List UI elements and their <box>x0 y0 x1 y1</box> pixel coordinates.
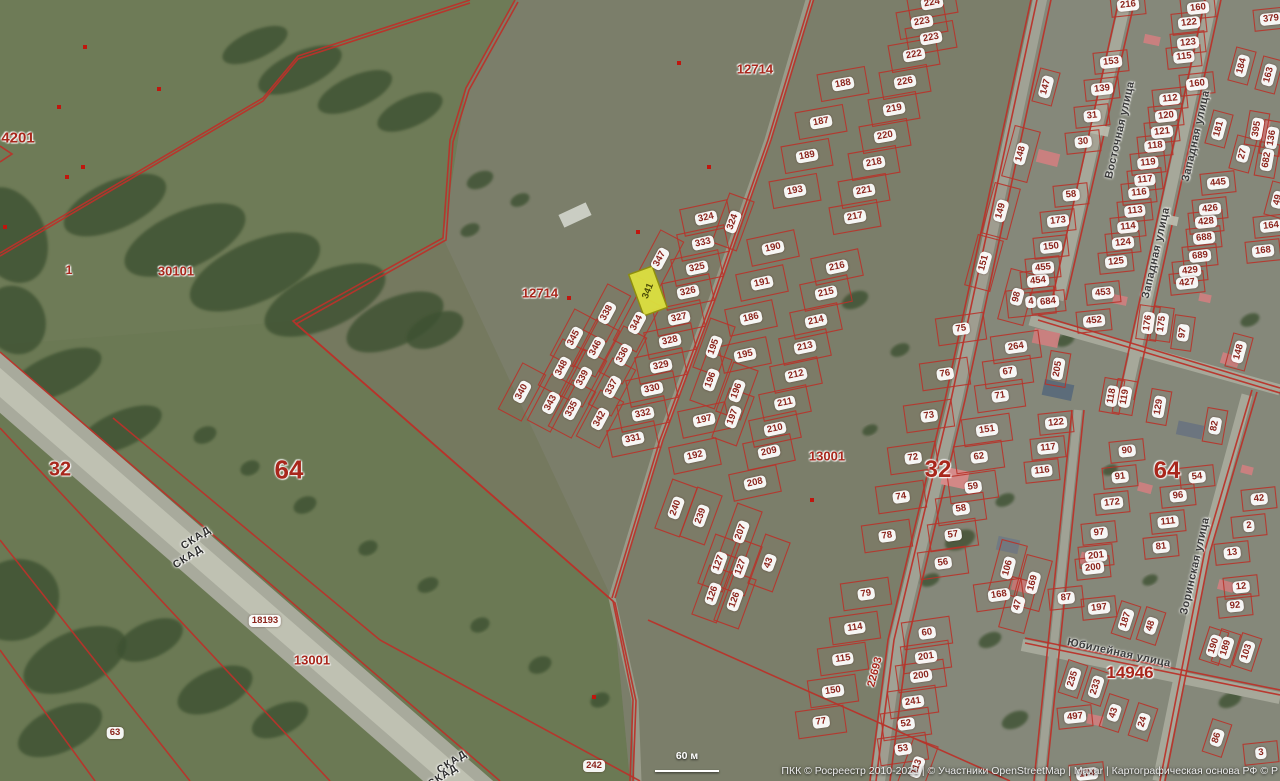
parcel-label[interactable]: 122 <box>1178 16 1201 30</box>
parcel-label[interactable]: 76 <box>936 367 954 381</box>
parcel-label[interactable]: 52 <box>897 717 915 731</box>
parcel-label[interactable]: 78 <box>878 529 896 543</box>
parcel-label[interactable]: 54 <box>1188 470 1206 484</box>
survey-point <box>3 225 7 229</box>
survey-point <box>57 105 61 109</box>
quarter-label[interactable]: 64 <box>1154 457 1181 485</box>
map-canvas[interactable]: 2242232232222262192202182212171881871891… <box>0 0 1280 781</box>
parcel-label[interactable]: 77 <box>812 715 830 729</box>
parcel-label[interactable]: 58 <box>952 502 970 516</box>
parcel-label[interactable]: 112 <box>1159 92 1181 106</box>
parcel-label[interactable]: 454 <box>1027 274 1050 288</box>
parcel-label[interactable]: 445 <box>1207 176 1230 190</box>
survey-point <box>65 175 69 179</box>
quarter-label[interactable]: 64 <box>275 455 304 486</box>
parcel-label[interactable]: 379 <box>1260 12 1280 26</box>
parcel-label[interactable]: 53 <box>894 742 912 756</box>
parcel-label[interactable]: 117 <box>1037 441 1059 455</box>
parcel-label[interactable]: 497 <box>1064 710 1087 724</box>
parcel-label[interactable]: 4 <box>1025 295 1037 308</box>
parcel-label[interactable]: 684 <box>1037 295 1060 309</box>
parcel-label[interactable]: 59 <box>964 480 982 494</box>
parcel-label[interactable]: 62 <box>970 450 988 464</box>
parcel-label[interactable]: 56 <box>934 556 952 570</box>
parcel-label[interactable]: 58 <box>1062 188 1080 202</box>
parcel-label[interactable]: 73 <box>920 409 938 423</box>
parcel-label[interactable]: 75 <box>952 322 970 336</box>
quarter-label[interactable]: 30101 <box>158 264 194 279</box>
parcel-label[interactable]: 426 <box>1199 202 1222 216</box>
parcel-label[interactable]: 57 <box>944 528 962 542</box>
parcel-label[interactable]: 172 <box>1101 496 1124 510</box>
parcel-label[interactable]: 168 <box>1252 244 1275 258</box>
parcel-label[interactable]: 200 <box>1082 561 1105 575</box>
survey-point <box>810 498 814 502</box>
survey-point <box>81 165 85 169</box>
parcel-label[interactable]: 111 <box>1157 515 1179 529</box>
quarter-label[interactable]: 13001 <box>294 653 330 668</box>
quarter-label[interactable]: 1 <box>66 263 73 277</box>
parcel-label[interactable]: 87 <box>1057 591 1075 605</box>
parcel-label[interactable]: 160 <box>1186 77 1209 91</box>
survey-point <box>707 165 711 169</box>
parcel-label[interactable]: 18193 <box>249 615 281 627</box>
parcel-label[interactable]: 428 <box>1195 215 1218 229</box>
scale-bar-label: 60 м <box>676 750 698 762</box>
parcel-label[interactable]: 2 <box>1243 519 1255 532</box>
parcel-label[interactable]: 63 <box>107 727 124 739</box>
parcel-label[interactable]: 91 <box>1111 470 1129 484</box>
parcel-label[interactable]: 119 <box>1137 156 1159 170</box>
survey-point <box>592 695 596 699</box>
quarter-label[interactable]: 32 <box>925 456 952 484</box>
parcel-label[interactable]: 113 <box>1124 204 1146 218</box>
parcel-label[interactable]: 123 <box>1177 36 1200 50</box>
parcel-label[interactable]: 688 <box>1193 231 1216 245</box>
scale-bar <box>655 770 719 772</box>
parcel-label[interactable]: 116 <box>1128 186 1150 200</box>
parcel-label[interactable]: 74 <box>892 490 910 504</box>
quarter-label[interactable]: 13001 <box>809 449 845 464</box>
survey-point <box>636 230 640 234</box>
parcel-label[interactable]: 197 <box>1088 601 1111 615</box>
parcel-label[interactable]: 3 <box>1255 746 1267 759</box>
parcel-label[interactable]: 114 <box>1117 220 1139 234</box>
survey-point <box>567 296 571 300</box>
parcel-label[interactable]: 150 <box>1040 240 1063 254</box>
quarter-label[interactable]: 4201 <box>1 130 34 147</box>
parcel-label[interactable]: 71 <box>991 389 1009 403</box>
parcel-label[interactable]: 13 <box>1223 546 1241 560</box>
parcel-label[interactable]: 90 <box>1118 444 1136 458</box>
parcel-label[interactable]: 139 <box>1091 82 1114 96</box>
parcel-label[interactable]: 153 <box>1100 55 1123 69</box>
parcel-label[interactable]: 121 <box>1151 125 1174 139</box>
parcel-label[interactable]: 72 <box>904 451 922 465</box>
parcel-label[interactable]: 117 <box>1134 173 1156 187</box>
parcel-label[interactable]: 115 <box>1173 50 1195 64</box>
parcel-label[interactable]: 160 <box>1187 1 1210 15</box>
parcel-label[interactable]: 116 <box>1031 464 1053 478</box>
quarter-label[interactable]: 14946 <box>1106 663 1153 683</box>
parcel-label[interactable]: 125 <box>1105 255 1128 269</box>
quarter-label[interactable]: 12714 <box>522 286 558 301</box>
parcel-label[interactable]: 96 <box>1169 489 1187 503</box>
parcel-label[interactable]: 12 <box>1232 580 1250 594</box>
parcel-label[interactable]: 124 <box>1112 236 1135 250</box>
parcel-label[interactable]: 455 <box>1032 261 1055 275</box>
survey-point <box>677 61 681 65</box>
parcel-label[interactable]: 60 <box>918 626 936 640</box>
parcel-label[interactable]: 242 <box>583 760 605 772</box>
parcel-label[interactable]: 452 <box>1083 314 1106 328</box>
parcel-label[interactable]: 97 <box>1176 324 1190 342</box>
parcel-label[interactable]: 97 <box>1090 526 1108 540</box>
parcel-label[interactable]: 79 <box>857 587 875 601</box>
parcel-label[interactable]: 173 <box>1047 214 1070 228</box>
map-attribution: ПКК © Росреестр 2010-2021 | © Участники … <box>781 765 1278 777</box>
survey-point <box>83 45 87 49</box>
parcel-label[interactable]: 31 <box>1083 109 1101 123</box>
parcel-label[interactable]: 427 <box>1176 276 1199 290</box>
quarter-label[interactable]: 12714 <box>737 62 773 77</box>
survey-point <box>157 87 161 91</box>
parcel-label[interactable]: 30 <box>1074 135 1092 149</box>
parcel-label[interactable]: 164 <box>1260 219 1280 233</box>
parcel-label[interactable]: 689 <box>1189 249 1212 263</box>
parcel-label[interactable]: 118 <box>1144 139 1166 153</box>
parcel-label[interactable]: 81 <box>1152 540 1170 554</box>
parcel-label[interactable]: 122 <box>1045 416 1068 430</box>
parcel-label[interactable]: 120 <box>1155 109 1178 123</box>
quarter-label[interactable]: 32 <box>49 459 71 482</box>
parcel-label[interactable]: 67 <box>999 365 1017 379</box>
parcel-label[interactable]: 42 <box>1250 492 1268 506</box>
parcel-label[interactable]: 92 <box>1226 599 1244 613</box>
parcel-label[interactable]: 453 <box>1092 286 1115 300</box>
